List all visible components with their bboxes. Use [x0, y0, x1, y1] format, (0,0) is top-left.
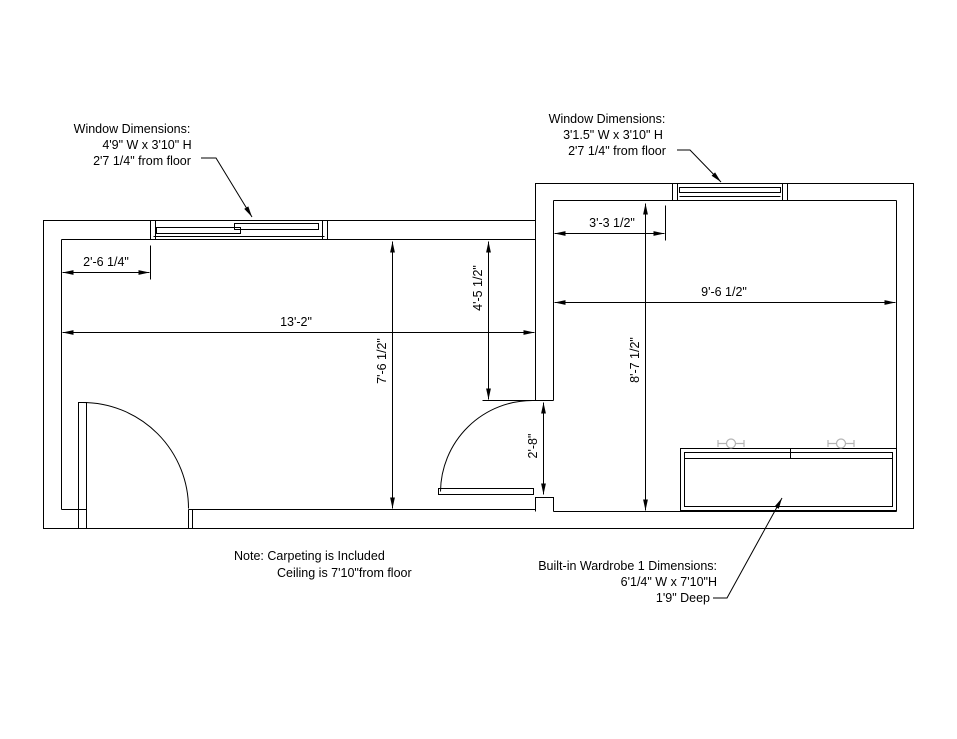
- wardrobe-inner: [685, 453, 893, 507]
- note-line1: Note: Carpeting is Included: [234, 549, 385, 563]
- window-left-label-size: 4'9" W x 3'10" H: [102, 138, 191, 152]
- window-right: [673, 184, 788, 201]
- leader-window-left: [201, 158, 252, 217]
- annotations: Window Dimensions: 4'9" W x 3'10" H 2'7 …: [74, 112, 717, 605]
- interior-door: [439, 400, 534, 494]
- wardrobe-label-title: Built-in Wardrobe 1 Dimensions:: [538, 559, 717, 573]
- window-right-label-title: Window Dimensions:: [549, 112, 666, 126]
- wardrobe-label-size: 6'1/4" W x 7'10"H: [621, 575, 717, 589]
- window-left-sash-lower: [157, 228, 241, 234]
- exterior-door-jamb-left: [79, 510, 87, 529]
- leaders: [201, 150, 782, 598]
- wall-outer-boundary: [44, 184, 914, 529]
- leader-window-right: [677, 150, 721, 182]
- interior-door-sill: [536, 498, 554, 512]
- window-left-label-height: 2'7 1/4" from floor: [93, 154, 191, 168]
- window-left: [151, 221, 328, 240]
- dimension-left-window-offset: 2'-6 1/4": [83, 255, 129, 269]
- dimension-left-room-depth: 7'-6 1/2": [375, 338, 389, 384]
- window-left-sash-upper: [235, 224, 319, 230]
- floor-plan-canvas: 2'-6 1/4" 13'-2" 4'-5 1/2" 7'-6 1/2" 3'-…: [0, 0, 957, 739]
- exterior-door-leaf: [79, 403, 87, 510]
- wardrobe-label-depth: 1'9" Deep: [656, 591, 710, 605]
- hanging-rod-icon: [828, 439, 854, 448]
- wardrobe: [681, 439, 897, 511]
- wardrobe-outer: [681, 449, 897, 511]
- dimension-left-room-width: 13'-2": [280, 315, 312, 329]
- dimensions: 2'-6 1/4" 13'-2" 4'-5 1/2" 7'-6 1/2" 3'-…: [63, 204, 896, 511]
- leader-wardrobe: [713, 498, 782, 598]
- exterior-door: [79, 403, 189, 510]
- hanging-rod-icon: [718, 439, 744, 448]
- window-right-label-size: 3'1.5" W x 3'10" H: [563, 128, 663, 142]
- window-left-label-title: Window Dimensions:: [74, 122, 191, 136]
- dimension-door-opening: 2'-8": [526, 434, 540, 459]
- exterior-door-swing-arc: [83, 403, 189, 509]
- interior-door-leaf: [439, 489, 534, 495]
- dimension-right-window-offset: 3'-3 1/2": [589, 216, 635, 230]
- walls: [44, 184, 914, 529]
- floor-plan-page: 2'-6 1/4" 13'-2" 4'-5 1/2" 7'-6 1/2" 3'-…: [0, 0, 957, 739]
- dimension-right-room-depth: 8'-7 1/2": [628, 337, 642, 383]
- interior-door-swing-arc: [441, 400, 534, 491]
- exterior-door-jamb-right: [189, 510, 193, 529]
- dimension-right-room-width: 9'-6 1/2": [701, 285, 747, 299]
- window-right-glazing: [680, 188, 781, 193]
- note-line2: Ceiling is 7'10"from floor: [277, 566, 412, 580]
- window-right-label-height: 2'7 1/4" from floor: [568, 144, 666, 158]
- dimension-middle-wall-upper: 4'-5 1/2": [471, 265, 485, 311]
